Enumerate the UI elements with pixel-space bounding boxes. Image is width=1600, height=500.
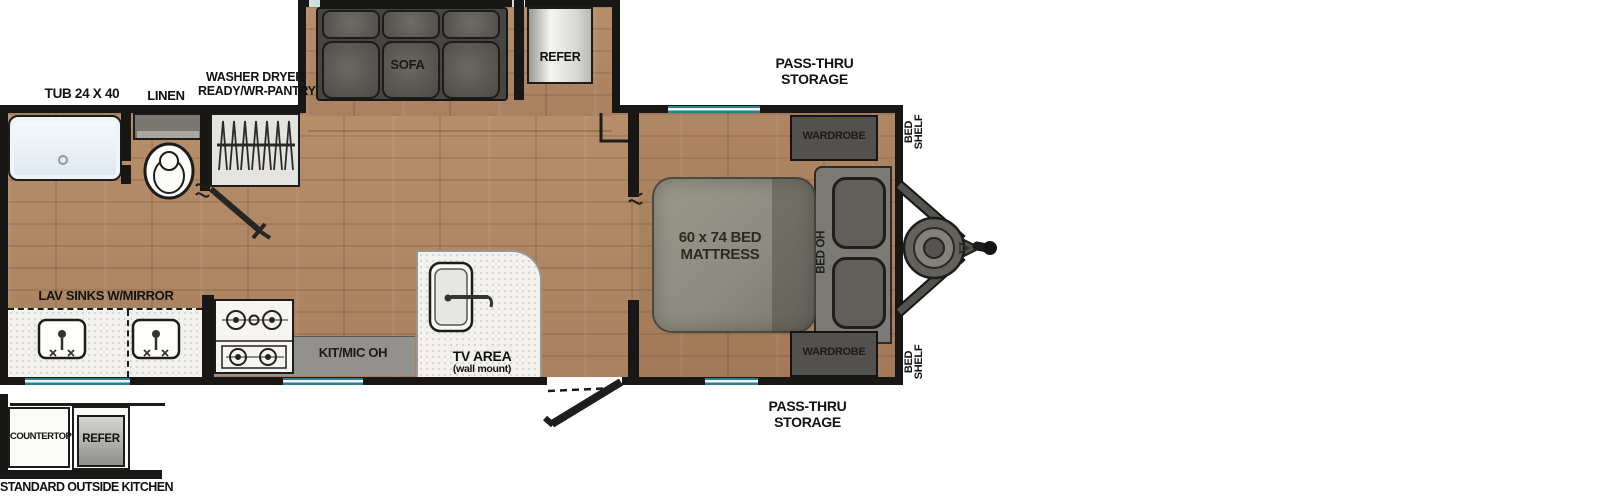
window-bottom-lav bbox=[25, 378, 130, 385]
outside-kitchen-bracket-bottom bbox=[0, 470, 162, 479]
pass-thru-top-line2: STORAGE bbox=[757, 71, 872, 87]
bath-wall bbox=[200, 113, 210, 191]
pillow-bottom bbox=[832, 257, 886, 329]
pass-thru-bottom-line2: STORAGE bbox=[750, 414, 865, 430]
pantry-label: WASHER DRYER READY/WR-PANTRY bbox=[198, 71, 312, 99]
outside-countertop-label: COUNTERTOP bbox=[10, 409, 68, 466]
bed-shelf-top-label: BED SHELF bbox=[904, 108, 924, 156]
pantry-label-line2: READY/WR-PANTRY bbox=[198, 85, 312, 99]
tub-wall-lower bbox=[121, 165, 131, 184]
mattress-label: 60 x 74 BED MATTRESS bbox=[645, 230, 795, 263]
bedroom-partition-bottom bbox=[628, 300, 639, 377]
lav-counter-divider bbox=[127, 310, 129, 377]
slideout-seam-line bbox=[308, 130, 612, 132]
lav-label: LAV SINKS W/MIRROR bbox=[8, 289, 204, 303]
pass-thru-bottom-line1: PASS-THRU bbox=[750, 398, 865, 414]
kitchen-wall bbox=[202, 295, 214, 377]
bathtub bbox=[8, 115, 122, 181]
slideout-wall-top bbox=[298, 0, 620, 7]
rv-floorplan: TUB 24 X 40 LINEN WASHER DRYER READY/WR-… bbox=[0, 0, 1600, 500]
sofa-label: SOFA bbox=[355, 58, 460, 72]
outside-kitchen-bracket-left bbox=[0, 394, 8, 479]
linen-label: LINEN bbox=[136, 89, 196, 103]
sofa-back-cushion-1 bbox=[322, 10, 380, 39]
tv-area-sub-label: (wall mount) bbox=[428, 364, 536, 376]
wall-top-a bbox=[0, 105, 306, 113]
outside-kitchen-caption: STANDARD OUTSIDE KITCHEN bbox=[0, 481, 170, 495]
mattress-label-line2: MATTRESS bbox=[645, 247, 795, 264]
kit-overhead-label: KIT/MIC OH bbox=[288, 346, 418, 360]
pass-thru-top-line1: PASS-THRU bbox=[757, 55, 872, 71]
window-top-bedroom bbox=[668, 106, 760, 113]
tub-label: TUB 24 X 40 bbox=[20, 87, 144, 102]
pass-thru-top-label: PASS-THRU STORAGE bbox=[757, 55, 872, 87]
bedroom-partition-top bbox=[628, 113, 639, 197]
slideout-wall-right bbox=[612, 0, 620, 112]
refrigerator bbox=[527, 7, 593, 84]
entry-door-icon bbox=[545, 382, 621, 425]
lav-counter bbox=[8, 308, 202, 377]
refer-divider-wall bbox=[514, 0, 524, 100]
linen-closet-shelf bbox=[137, 131, 199, 138]
stove bbox=[214, 299, 294, 374]
pantry-label-line1: WASHER DRYER bbox=[198, 71, 312, 85]
outside-refer-label: REFER bbox=[77, 415, 125, 467]
pillow-top bbox=[832, 177, 886, 249]
mattress-label-line1: 60 x 74 BED bbox=[645, 230, 795, 247]
wall-front bbox=[895, 105, 903, 385]
refer-label: REFER bbox=[527, 51, 593, 65]
bed-oh-label: BED OH bbox=[816, 220, 829, 284]
slideout-window-left bbox=[309, 0, 320, 7]
wall-bottom-b bbox=[622, 377, 903, 385]
sofa-back-cushion-3 bbox=[442, 10, 500, 39]
wardrobe-top-label: WARDROBE bbox=[790, 115, 878, 161]
sofa-back-cushion-2 bbox=[382, 10, 440, 39]
hitch-icon bbox=[899, 185, 997, 312]
bed-shelf-bottom-line2: SHELF bbox=[914, 338, 924, 386]
bed-shelf-bottom-label: BED SHELF bbox=[904, 338, 924, 386]
wall-left bbox=[0, 105, 8, 385]
window-bottom-kitchen bbox=[283, 378, 363, 385]
pantry bbox=[210, 113, 300, 187]
bed-shelf-top-line2: SHELF bbox=[914, 108, 924, 156]
wardrobe-bottom-label: WARDROBE bbox=[790, 331, 878, 377]
tub-wall-upper bbox=[121, 113, 131, 161]
pass-thru-bottom-label: PASS-THRU STORAGE bbox=[750, 398, 865, 430]
window-bottom-bedroom bbox=[705, 378, 758, 385]
